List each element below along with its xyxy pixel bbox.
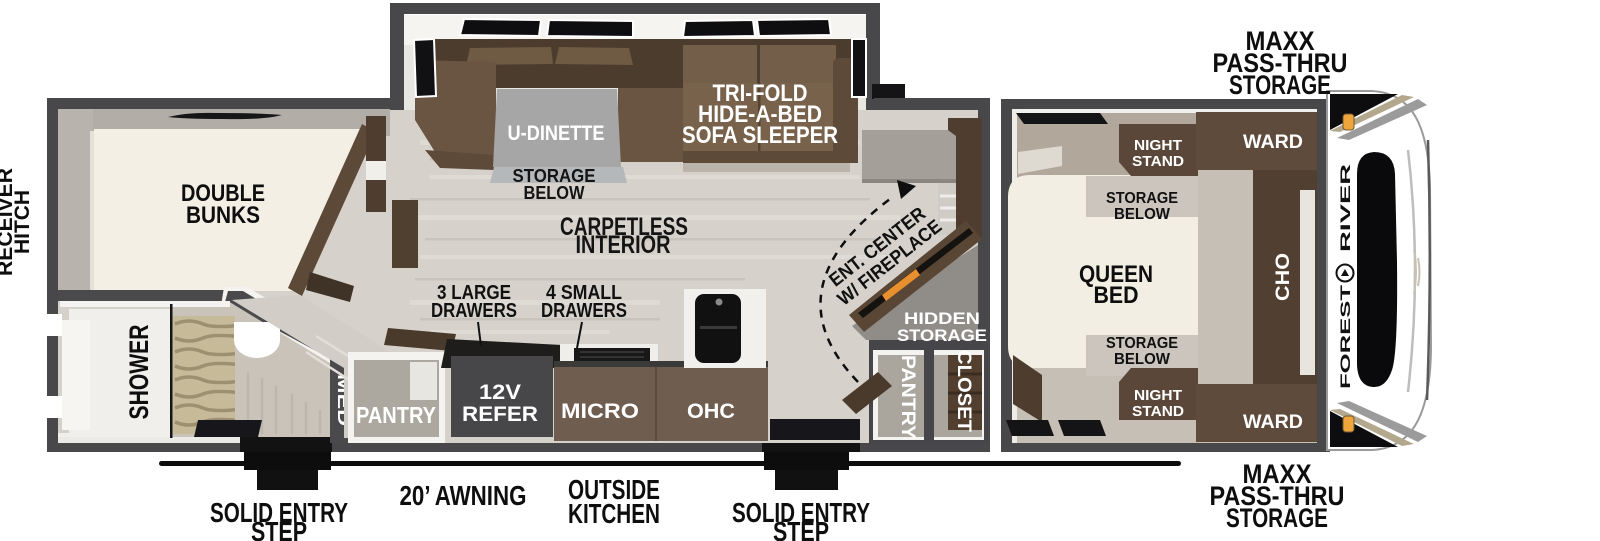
- svg-text:STORAGE: STORAGE: [1229, 70, 1331, 100]
- svg-text:SHOWER: SHOWER: [124, 325, 154, 420]
- svg-text:STORAGE: STORAGE: [1226, 503, 1328, 533]
- svg-text:STORAGE: STORAGE: [1106, 190, 1178, 207]
- svg-text:PANTRY: PANTRY: [356, 402, 436, 428]
- svg-text:BUNKS: BUNKS: [186, 202, 260, 229]
- svg-text:BELOW: BELOW: [1114, 351, 1171, 368]
- svg-text:STAND: STAND: [1132, 403, 1184, 420]
- svg-text:U-DINETTE: U-DINETTE: [508, 122, 605, 145]
- svg-text:12V: 12V: [479, 381, 521, 404]
- svg-text:20’ AWNING: 20’ AWNING: [400, 480, 527, 511]
- svg-text:KITCHEN: KITCHEN: [568, 498, 660, 529]
- svg-text:DRAWERS: DRAWERS: [431, 300, 517, 322]
- svg-text:NIGHT: NIGHT: [1134, 387, 1182, 404]
- svg-text:STAND: STAND: [1132, 153, 1184, 170]
- svg-text:CLOSET: CLOSET: [953, 350, 974, 432]
- svg-text:STEP: STEP: [251, 516, 307, 541]
- svg-text:FOREST: FOREST: [1337, 284, 1353, 389]
- svg-text:MICRO: MICRO: [561, 400, 639, 423]
- svg-text:STORAGE: STORAGE: [1106, 335, 1178, 352]
- svg-text:PANTRY: PANTRY: [897, 355, 918, 439]
- svg-text:REFER: REFER: [462, 403, 538, 426]
- svg-text:BED: BED: [1094, 282, 1139, 309]
- svg-text:BELOW: BELOW: [1114, 206, 1171, 223]
- svg-text:WARD: WARD: [1243, 132, 1303, 153]
- svg-text:OHC: OHC: [687, 400, 735, 423]
- svg-text:STORAGE: STORAGE: [897, 326, 987, 345]
- svg-text:NIGHT: NIGHT: [1134, 137, 1182, 154]
- svg-text:STEP: STEP: [773, 516, 829, 541]
- svg-text:SOFA SLEEPER: SOFA SLEEPER: [682, 122, 838, 149]
- svg-text:INTERIOR: INTERIOR: [576, 231, 671, 259]
- svg-text:WARD: WARD: [1243, 412, 1303, 433]
- svg-text:HITCH: HITCH: [11, 190, 34, 254]
- svg-text:CHO: CHO: [1273, 253, 1294, 301]
- svg-text:DRAWERS: DRAWERS: [541, 300, 627, 322]
- svg-text:RIVER: RIVER: [1337, 164, 1353, 252]
- svg-text:BELOW: BELOW: [524, 183, 585, 203]
